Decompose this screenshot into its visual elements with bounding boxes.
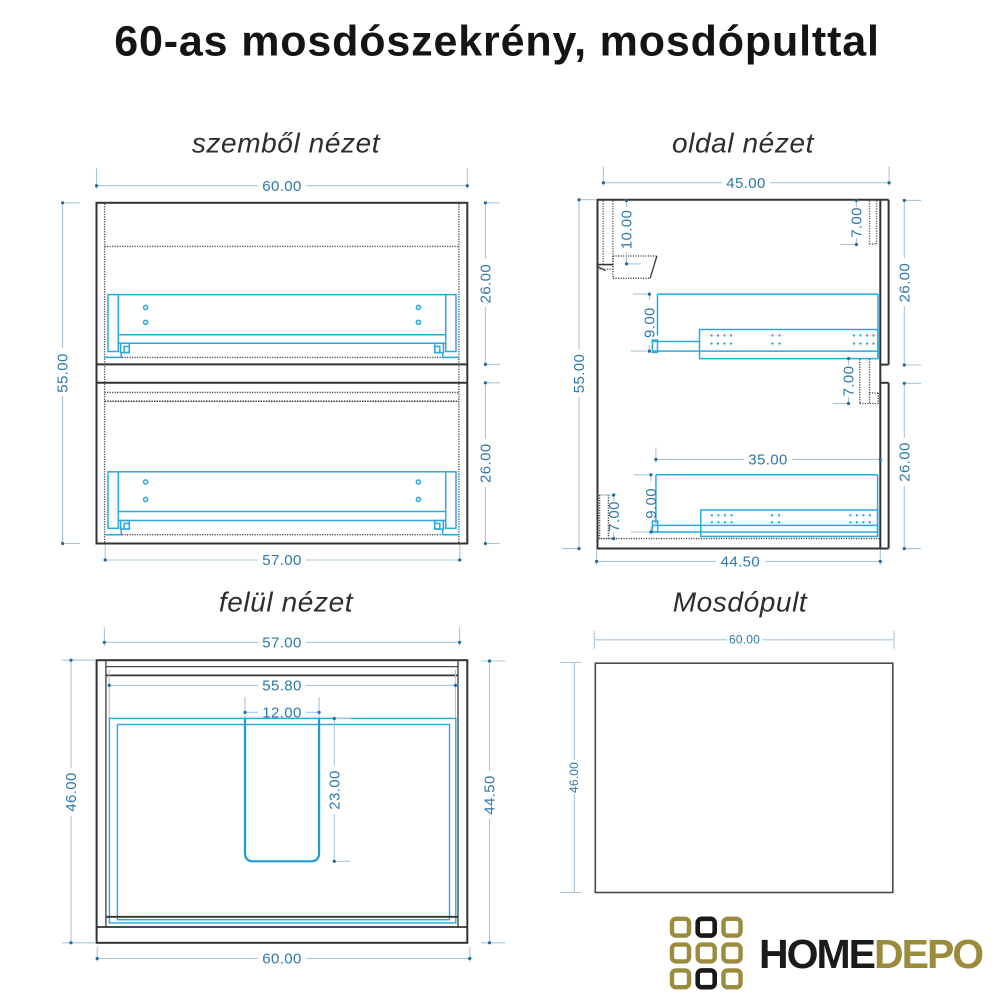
svg-text:46.00: 46.00 [567,762,581,793]
svg-text:35.00: 35.00 [748,452,788,469]
svg-text:9.00: 9.00 [642,307,659,338]
svg-text:HOMEDEPO: HOMEDEPO [759,931,983,977]
svg-text:oldal nézet: oldal nézet [672,128,815,159]
svg-text:10.00: 10.00 [619,210,636,250]
svg-text:Mosdópult: Mosdópult [673,587,808,618]
svg-text:9.00: 9.00 [643,488,660,519]
svg-text:60.00: 60.00 [262,951,302,968]
svg-text:26.00: 26.00 [478,264,495,304]
svg-text:44.50: 44.50 [482,775,499,815]
svg-text:26.00: 26.00 [478,443,495,483]
svg-text:23.00: 23.00 [326,770,343,810]
svg-text:57.00: 57.00 [262,634,302,651]
svg-text:44.50: 44.50 [721,554,761,571]
svg-text:26.00: 26.00 [896,442,913,482]
svg-text:26.00: 26.00 [896,263,913,303]
svg-text:60-as mosdószekrény, mosdópult: 60-as mosdószekrény, mosdópulttal [114,18,880,66]
svg-text:46.00: 46.00 [63,772,80,812]
svg-text:57.00: 57.00 [262,552,302,569]
svg-text:szemből nézet: szemből nézet [192,128,381,159]
svg-text:55.00: 55.00 [55,353,72,393]
svg-text:60.00: 60.00 [262,178,302,195]
svg-text:7.00: 7.00 [849,207,866,238]
svg-text:felül nézet: felül nézet [219,587,354,618]
svg-text:7.00: 7.00 [841,366,858,397]
svg-text:55.00: 55.00 [571,354,588,394]
svg-text:7.00: 7.00 [606,501,623,532]
svg-text:60.00: 60.00 [729,633,760,647]
svg-text:45.00: 45.00 [726,175,766,192]
svg-text:55.80: 55.80 [262,678,302,695]
